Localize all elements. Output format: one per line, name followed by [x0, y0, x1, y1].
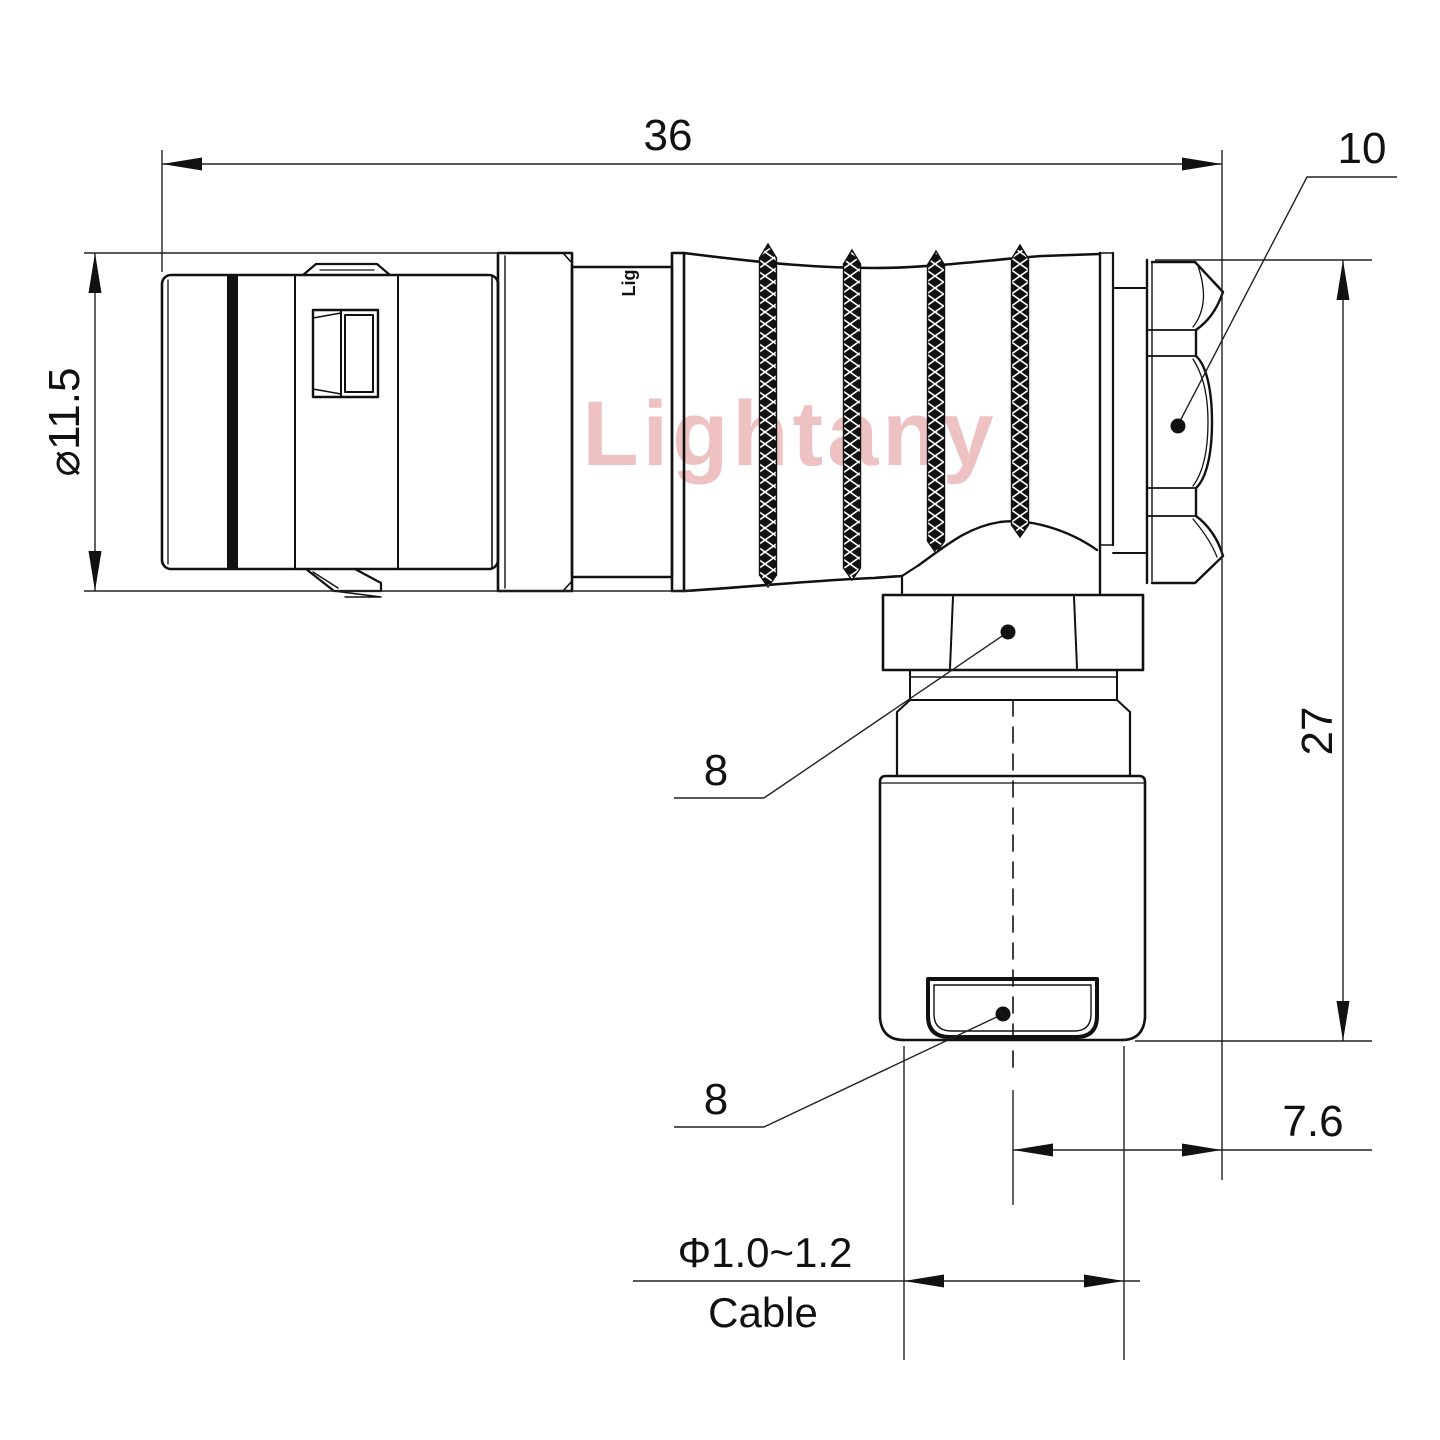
knurl-band-1: [760, 244, 777, 587]
drawing-canvas: Lightany: [0, 0, 1440, 1440]
connector-technical-drawing: Lightany: [0, 0, 1440, 1440]
dim-cable-text-label: Cable: [708, 1289, 818, 1336]
engraved-logo-mark: Lig: [619, 270, 639, 297]
dim-coupling-nut-label: 10: [1338, 124, 1387, 173]
dim-backnut-hex-label: 8: [704, 746, 728, 795]
dim-axis-to-face-label: 7.6: [1282, 1097, 1343, 1146]
dim-cable-diameter-label: Φ1.0~1.2: [678, 1229, 853, 1276]
knurl-band-4: [1012, 245, 1029, 537]
dim-overall-length-label: 36: [644, 111, 693, 160]
knurl-band-2: [844, 250, 861, 580]
dim-elbow-height-label: 27: [1293, 707, 1342, 756]
paper-background: [0, 0, 1440, 1440]
shell-black-band: [227, 276, 238, 568]
dim-gland-hex-label: 8: [704, 1075, 728, 1124]
dim-shell-diameter-label: ⌀11.5: [40, 368, 89, 477]
knurl-band-3: [928, 251, 945, 553]
